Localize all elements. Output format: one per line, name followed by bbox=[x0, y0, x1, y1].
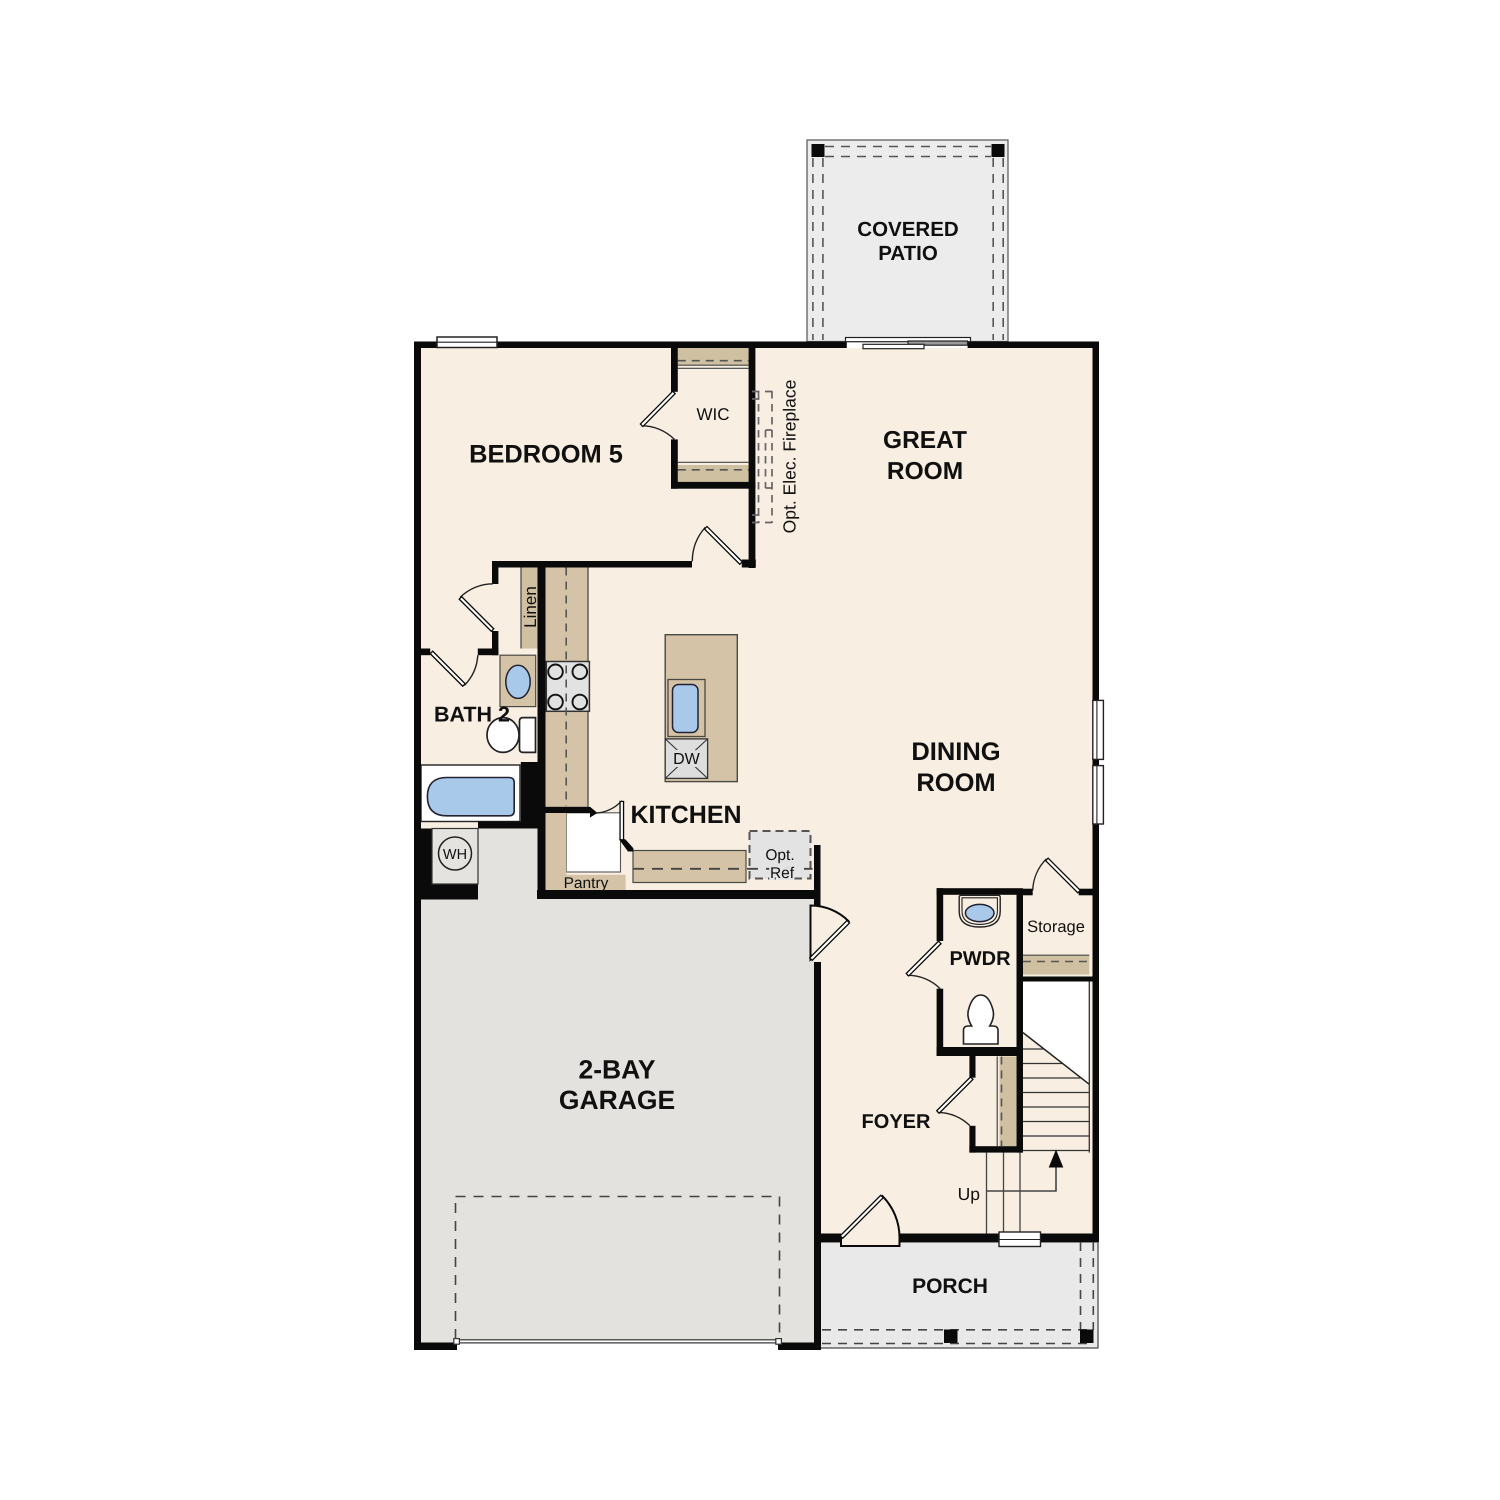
svg-text:Up: Up bbox=[958, 1184, 980, 1204]
svg-text:Storage: Storage bbox=[1027, 918, 1085, 936]
svg-text:FOYER: FOYER bbox=[862, 1111, 931, 1133]
svg-text:Linen: Linen bbox=[521, 586, 540, 628]
svg-text:DINING: DINING bbox=[911, 738, 1000, 766]
svg-text:PORCH: PORCH bbox=[912, 1275, 988, 1298]
svg-text:WIC: WIC bbox=[696, 405, 729, 424]
svg-text:GARAGE: GARAGE bbox=[559, 1085, 675, 1115]
svg-text:Opt. Elec. Fireplace: Opt. Elec. Fireplace bbox=[780, 380, 800, 534]
svg-text:WH: WH bbox=[443, 847, 467, 863]
svg-text:GREAT: GREAT bbox=[883, 427, 967, 454]
svg-text:COVERED: COVERED bbox=[857, 218, 958, 241]
svg-text:Ref: Ref bbox=[770, 865, 795, 882]
svg-text:DW: DW bbox=[673, 751, 701, 768]
svg-text:Opt.: Opt. bbox=[765, 847, 794, 864]
svg-text:KITCHEN: KITCHEN bbox=[630, 801, 741, 829]
svg-text:ROOM: ROOM bbox=[887, 458, 963, 485]
svg-text:PATIO: PATIO bbox=[878, 242, 938, 265]
svg-text:BEDROOM 5: BEDROOM 5 bbox=[469, 441, 623, 469]
svg-text:2-BAY: 2-BAY bbox=[578, 1055, 655, 1085]
svg-text:BATH 2: BATH 2 bbox=[434, 703, 510, 727]
svg-text:PWDR: PWDR bbox=[949, 948, 1011, 970]
svg-text:ROOM: ROOM bbox=[916, 769, 995, 797]
svg-text:Pantry: Pantry bbox=[564, 875, 609, 892]
